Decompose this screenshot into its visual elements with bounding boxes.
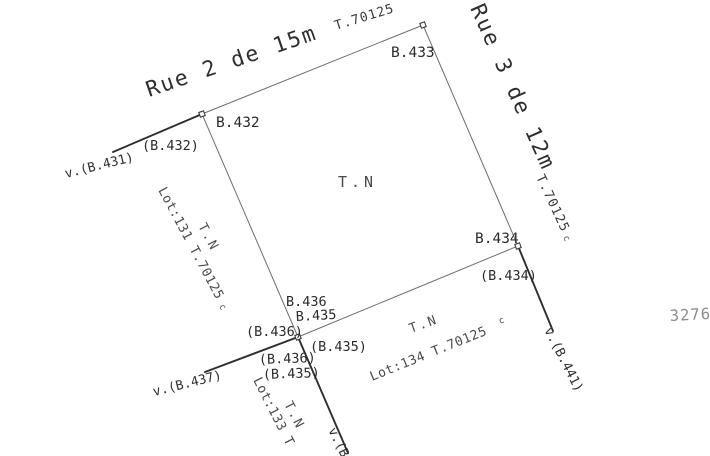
point-b435-paren-below-label: (B.435): [263, 365, 320, 383]
lot134-label-superscript: c: [497, 315, 506, 326]
street-rue2-title-ref: T.70125: [333, 1, 396, 33]
witness-b441-label: v.(B.441): [540, 325, 585, 395]
point-b434-paren-label: (B.434): [480, 268, 537, 284]
survey-point-b433-marker: [420, 22, 426, 28]
street-rue3-title-ref-superscript: c: [560, 234, 571, 243]
point-b436-paren-left-label: (B.436): [246, 324, 303, 340]
parcel-side-left: [202, 114, 298, 337]
witness-b437-label: v.(B.437): [151, 368, 223, 400]
lot134-label: Lot:134 T.70125: [368, 324, 489, 385]
point-b433-label: B.433: [391, 45, 435, 61]
street-rue2-label: Rue 2 de 15m: [143, 21, 321, 103]
witness-line-b441: [518, 246, 553, 331]
point-b432-paren-label: (B.432): [142, 138, 199, 154]
point-b434-label: B.434: [475, 231, 519, 247]
survey-point-b432-marker: [199, 111, 205, 117]
lot131-label-superscript: c: [216, 303, 227, 312]
parcel-terrain-label: T.N: [338, 173, 377, 191]
witness-b431-label: v.(B.431): [63, 150, 135, 182]
point-b435-paren-right-label: (B.435): [310, 339, 367, 355]
scanned-survey-plan: Rue 2 de 15m T.70125 Rue 3 de 12m T.7012…: [0, 0, 710, 456]
witness-cutoff-label: v.(B.: [324, 425, 355, 456]
point-b435-label: B.435: [295, 307, 336, 325]
lot134-terrain-label: T.N: [407, 313, 440, 337]
survey-plan-canvas: Rue 2 de 15m T.70125 Rue 3 de 12m T.7012…: [0, 0, 710, 456]
point-b432-label: B.432: [216, 115, 260, 131]
street-rue3-title-ref: T.70125: [532, 172, 572, 234]
street-rue3-label: Rue 3 de 12m: [465, 0, 561, 174]
sheet-margin-number: 3276: [669, 305, 710, 325]
